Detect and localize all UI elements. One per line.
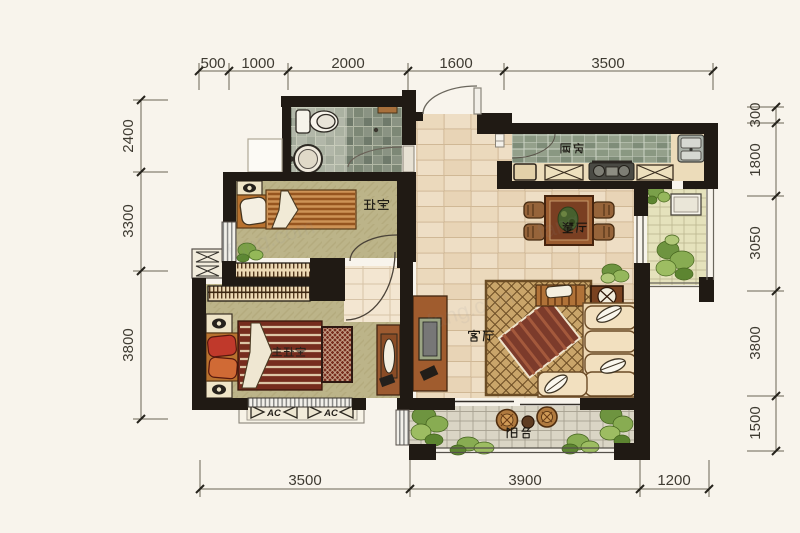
svg-text:1000: 1000: [241, 55, 274, 72]
svg-text:2400: 2400: [120, 119, 137, 152]
svg-text:300: 300: [747, 102, 764, 127]
svg-text:3300: 3300: [120, 204, 137, 237]
svg-text:3500: 3500: [288, 472, 321, 489]
svg-text:3500: 3500: [591, 55, 624, 72]
svg-text:3800: 3800: [120, 328, 137, 361]
svg-text:1500: 1500: [747, 406, 764, 439]
svg-text:1600: 1600: [439, 55, 472, 72]
svg-text:500: 500: [200, 55, 225, 72]
svg-text:AC: AC: [323, 408, 338, 419]
svg-text:3800: 3800: [747, 326, 764, 359]
svg-text:1200: 1200: [657, 472, 690, 489]
svg-text:1800: 1800: [747, 143, 764, 176]
svg-text:3050: 3050: [747, 226, 764, 259]
svg-text:AC: AC: [266, 408, 281, 419]
svg-text:2000: 2000: [331, 55, 364, 72]
svg-text:3900: 3900: [508, 472, 541, 489]
